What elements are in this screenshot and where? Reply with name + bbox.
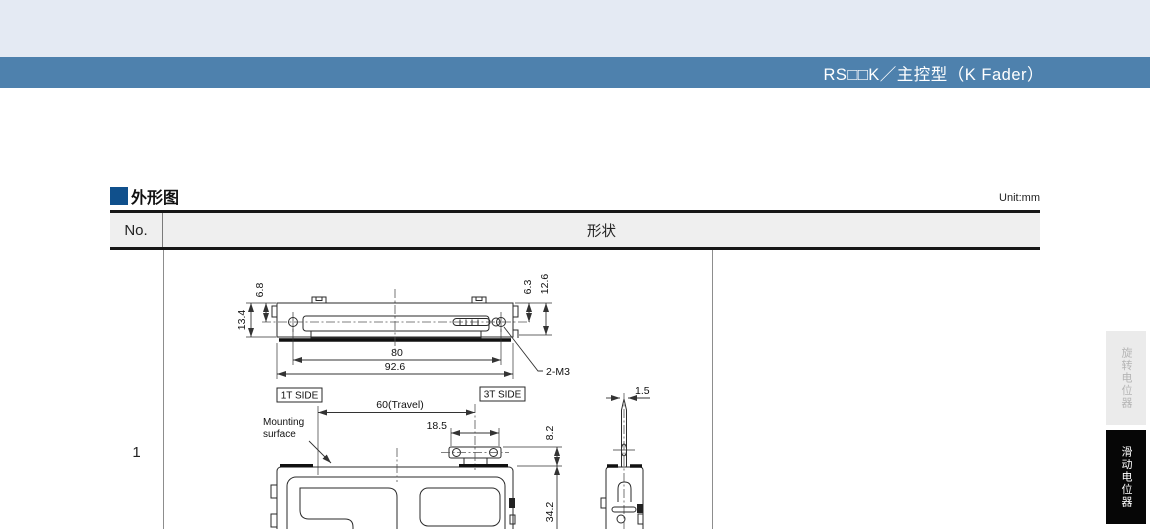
dim-18-5-label: 18.5	[427, 420, 448, 432]
label-3t-side: 3T SIDE	[484, 390, 522, 401]
unit-label: Unit:mm	[999, 192, 1040, 204]
end-view: 1.5	[601, 385, 650, 529]
dim-12-6-label: 12.6	[539, 274, 551, 295]
dim-6-8-label: 6.8	[254, 283, 266, 298]
section-heading: 外形图	[110, 184, 179, 208]
mounting-surface-label-2: surface	[263, 429, 296, 440]
dim-80-label: 80	[391, 347, 403, 359]
top-band	[0, 0, 1150, 57]
thread-note-label: 2-M3	[546, 366, 570, 378]
table-column-divider-right	[712, 250, 713, 529]
side-tab-rotary-label: 旋转电位器	[1118, 347, 1134, 410]
mounting-surface-label-1: Mounting	[263, 417, 304, 428]
side-tab-slide-potentiometer[interactable]: 滑动电位器	[1106, 430, 1146, 524]
table-header-no: No.	[110, 213, 163, 247]
model-title-bar: RS□□K／主控型（K Fader）	[0, 57, 1150, 88]
table-header: No. 形状	[110, 210, 1040, 250]
dim-6-3-label: 6.3	[522, 280, 534, 295]
travel-label: 60(Travel)	[376, 399, 423, 411]
table-header-shape: 形状	[163, 213, 1040, 247]
page: RS□□K／主控型（K Fader） 外形图 Unit:mm No. 形状 1	[0, 0, 1150, 529]
dim-1-5-label: 1.5	[635, 385, 650, 397]
section-marker-icon	[110, 187, 128, 205]
side-tab-rotary-potentiometer[interactable]: 旋转电位器	[1106, 331, 1146, 425]
model-title: RS□□K／主控型（K Fader）	[823, 61, 1044, 85]
outline-drawing: 13.4 6.8 6.3 12.6 80 92.6 2-M3 1T SIDE	[164, 250, 712, 529]
side-tab-slide-label: 滑动电位器	[1118, 446, 1134, 509]
table-row-number: 1	[110, 444, 163, 461]
dim-8-2-label: 8.2	[544, 426, 556, 441]
label-1t-side: 1T SIDE	[281, 391, 319, 402]
dim-34-2-label: 34.2	[544, 502, 556, 523]
dim-92-6-label: 92.6	[385, 361, 406, 373]
top-view-dimensions: 13.4 6.8 6.3 12.6 80 92.6 2-M3	[236, 274, 570, 379]
dim-13-4-label: 13.4	[236, 310, 248, 331]
section-title: 外形图	[131, 184, 179, 208]
top-view	[262, 289, 530, 352]
side-view: 60(Travel) Mounting surface 18.5 8.2 34.…	[263, 399, 562, 529]
